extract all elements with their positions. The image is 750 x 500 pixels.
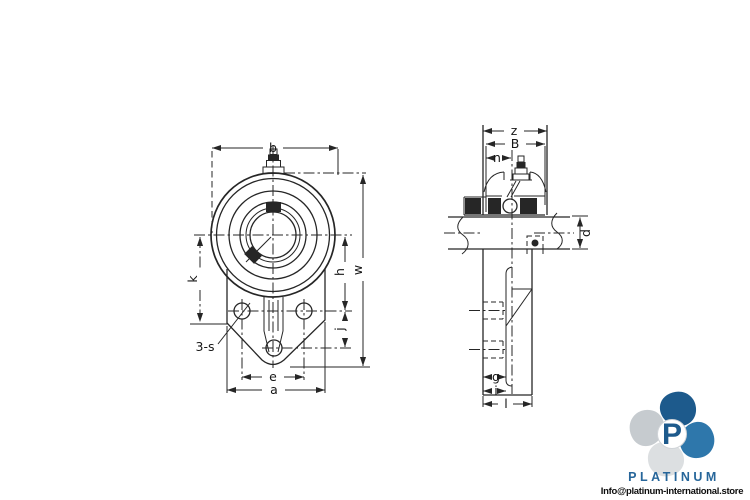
bolt-holes <box>228 299 352 380</box>
dim-label-b: b <box>269 140 277 155</box>
dim-label-n: n <box>493 150 501 165</box>
inner-ring-collar <box>465 198 481 214</box>
bearing-ball <box>503 199 517 213</box>
set-screw-top <box>266 202 281 212</box>
dim-label-B: B <box>511 136 520 151</box>
dim-b: b <box>212 140 338 233</box>
slot-profile <box>506 267 512 386</box>
dim-j: j <box>332 312 347 347</box>
dim-label-i: i <box>494 383 497 398</box>
flange-body-lower <box>483 249 532 395</box>
logo-email: Info@platinum-international.store <box>601 486 743 497</box>
grease-fitting-side <box>507 156 532 197</box>
dim-label-g: g <box>492 369 500 384</box>
logo-p-monogram: P <box>662 418 682 451</box>
bearing-cross-section <box>464 196 545 215</box>
front-view: 3-s b w h j <box>185 140 370 397</box>
dim-i: i <box>483 383 506 398</box>
dim-label-h: h <box>332 268 347 276</box>
dim-label-3s: 3-s <box>196 339 215 354</box>
dim-k: k <box>185 237 228 324</box>
drawing-page: 3-s b w h j <box>0 0 750 500</box>
dim-label-a: a <box>270 382 278 397</box>
logo-emblem: P <box>630 392 715 477</box>
shaft <box>444 213 574 254</box>
dim-w: w <box>290 175 370 367</box>
chamfer-edge <box>506 289 532 326</box>
dim-label-w: w <box>350 265 365 275</box>
dim-g: g <box>483 369 506 384</box>
side-view: z B n <box>444 123 593 411</box>
dim-label-d: d <box>578 229 593 237</box>
shaft-set-screw-hidden <box>527 236 543 257</box>
logo: P PLATINUM Info@platinum-international.s… <box>601 392 743 497</box>
dim-label-k: k <box>185 275 200 283</box>
dim-d: d <box>572 216 593 249</box>
logo-wordmark: PLATINUM <box>628 470 720 484</box>
dim-l: l <box>483 396 532 411</box>
hidden-bolt-holes <box>469 302 507 358</box>
shaft-break-right <box>552 213 563 249</box>
dim-n: n <box>486 150 511 165</box>
dim-label-j: j <box>332 327 347 331</box>
technical-drawing: 3-s b w h j <box>0 0 750 500</box>
dim-label-l: l <box>504 396 507 411</box>
